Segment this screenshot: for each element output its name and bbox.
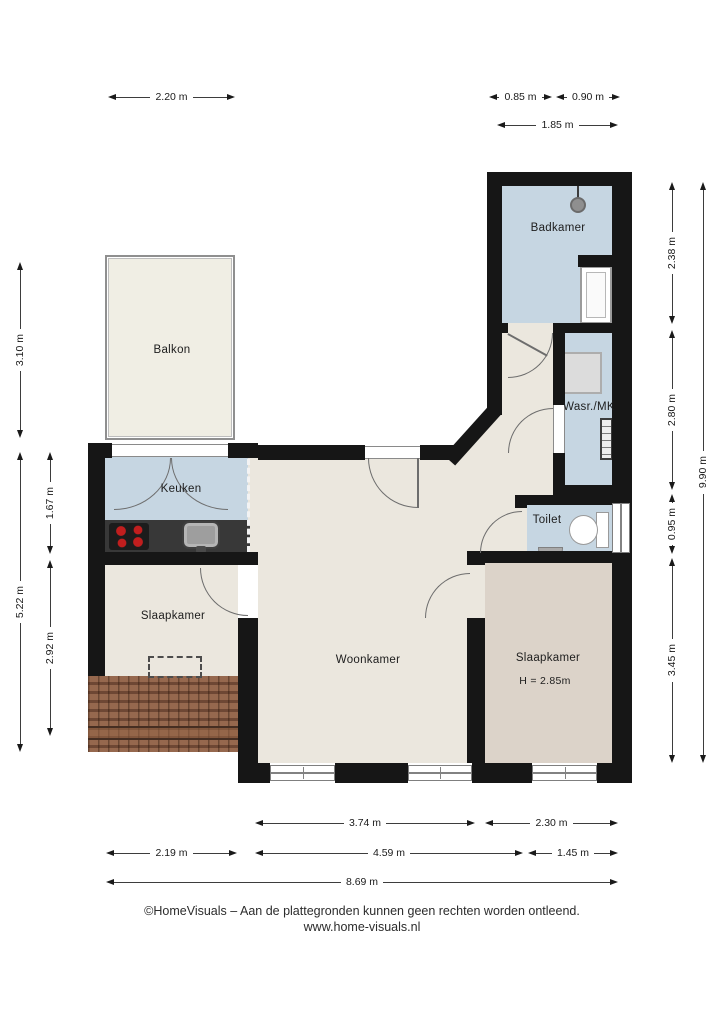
dim-right-990: 9.90 m	[697, 182, 709, 763]
room-label-toilet: Toilet	[533, 514, 562, 526]
dim-left-167: 1.67 m	[44, 452, 56, 554]
room-note-height: H = 2.85m	[519, 675, 570, 687]
wall-badkamer-left	[487, 172, 502, 415]
wall-badkamer-bottom-left-stub	[502, 323, 508, 333]
room-label-keuken: Keuken	[161, 483, 202, 495]
wall-bath-stub	[578, 255, 612, 267]
dim-bottom-459: 4.59 m	[255, 847, 523, 859]
dim-bottom-145: 1.45 m	[528, 847, 618, 859]
dim-right-238: 2.38 m	[666, 182, 678, 324]
dim-bottom-230: 2.30 m	[485, 817, 618, 829]
wall-keuken-bedroom	[88, 552, 258, 565]
wall-bottom-seg3	[472, 763, 532, 783]
toilet-bowl	[569, 515, 598, 545]
wall-top-mid-block	[228, 443, 258, 458]
floor-plan: Badkamer Balkon Keuken Wasr./MK Toilet S…	[0, 0, 724, 1024]
wall-woonkamer-bedroomR-lower	[467, 618, 485, 763]
wall-woonkamer-top-right	[420, 445, 454, 460]
dim-bottom-219: 2.19 m	[106, 847, 237, 859]
wall-wasruimte-bottom	[553, 485, 612, 495]
door-leaf-entry	[417, 458, 419, 508]
dim-top-220: 2.20 m	[108, 91, 235, 103]
wall-woonkamer-top-left	[258, 445, 365, 460]
wall-woonkamer-bedroomR-upper	[467, 551, 485, 565]
dim-left-292: 2.92 m	[44, 560, 56, 736]
wall-bedroomL-woonkamer	[238, 618, 258, 763]
window-toilet	[612, 503, 630, 553]
room-label-slaapkamer-rechts: Slaapkamer	[516, 652, 580, 664]
threshold-balkon-doors	[112, 444, 228, 457]
roof-eave-band	[88, 726, 238, 740]
dim-right-095: 0.95 m	[666, 494, 678, 554]
wall-badkamer-top	[487, 172, 632, 186]
dim-right-280: 2.80 m	[666, 330, 678, 490]
dim-top-185: 1.85 m	[497, 119, 618, 131]
wall-bottom-seg1	[238, 763, 270, 783]
shower-head-icon	[570, 197, 586, 213]
dim-top-090: 0.90 m	[556, 91, 620, 103]
window-woonkamer-2	[408, 765, 472, 781]
footer-website: www.home-visuals.nl	[0, 920, 724, 934]
room-label-badkamer: Badkamer	[531, 222, 586, 234]
wall-right-exterior	[612, 172, 632, 783]
room-label-slaapkamer-links: Slaapkamer	[141, 610, 205, 622]
wall-toilet-left-upper	[515, 495, 527, 508]
footer-copyright: ©HomeVisuals – Aan de plattegronden kunn…	[0, 904, 724, 918]
dim-left-310: 3.10 m	[14, 262, 26, 438]
cooktop	[109, 523, 149, 550]
open-passage-keuken	[247, 459, 250, 552]
dormer-outline	[148, 656, 202, 678]
dim-bottom-374: 3.74 m	[255, 817, 475, 829]
room-label-balkon: Balkon	[154, 344, 191, 356]
wall-wasruimte-left-upper	[553, 333, 565, 405]
dim-left-522: 5.22 m	[14, 452, 26, 752]
dim-top-085: 0.85 m	[489, 91, 552, 103]
bathtub	[580, 266, 612, 324]
window-woonkamer-1	[270, 765, 335, 781]
kitchen-sink	[182, 521, 220, 549]
roof-tiles	[88, 676, 238, 752]
wall-bottom-seg2	[335, 763, 408, 783]
wall-toilet-top	[515, 495, 612, 505]
room-label-woonkamer: Woonkamer	[336, 654, 400, 666]
wall-bottom-seg4	[597, 763, 632, 783]
dim-bottom-869: 8.69 m	[106, 876, 618, 888]
wall-badkamer-bottom	[553, 323, 612, 333]
dim-right-345: 3.45 m	[666, 558, 678, 763]
washing-machine	[562, 352, 602, 394]
window-bedroomR	[532, 765, 597, 781]
room-label-wasruimte: Wasr./MK	[563, 401, 615, 413]
